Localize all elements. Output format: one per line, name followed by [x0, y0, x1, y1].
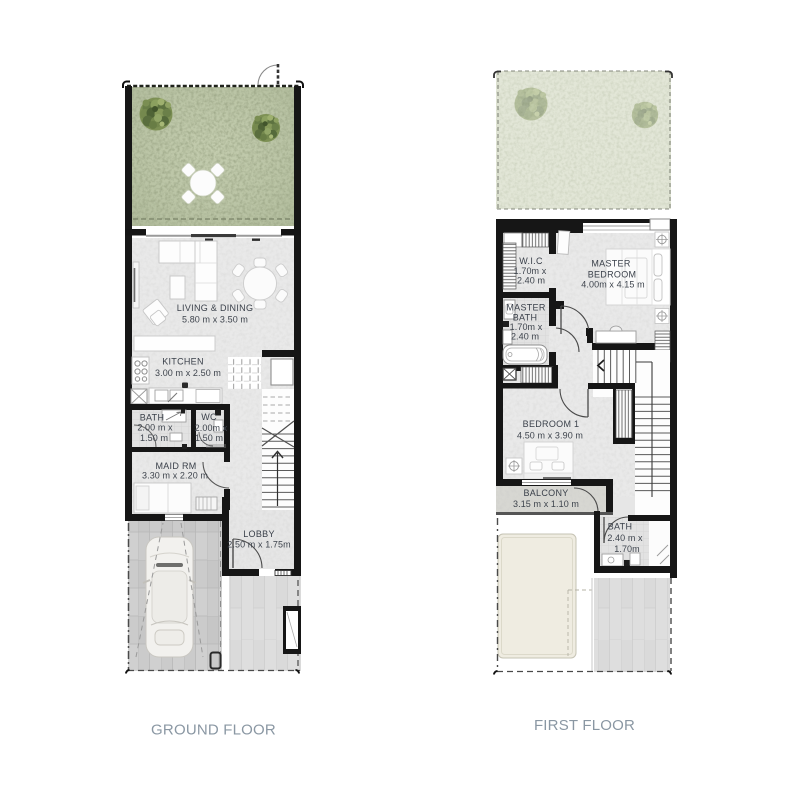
svg-text:1.70m: 1.70m	[614, 544, 640, 554]
svg-text:3.00 m x 2.50 m: 3.00 m x 2.50 m	[155, 368, 221, 378]
svg-text:3.15 m x 1.10 m: 3.15 m x 1.10 m	[513, 499, 579, 509]
svg-text:MASTER: MASTER	[591, 259, 631, 269]
svg-text:MAID RM: MAID RM	[155, 461, 196, 471]
svg-text:BEDROOM 1: BEDROOM 1	[523, 419, 580, 429]
svg-text:KITCHEN: KITCHEN	[162, 357, 204, 367]
svg-text:3.30 m x 2.20 m: 3.30 m x 2.20 m	[142, 471, 208, 481]
svg-text:W.I.C: W.I.C	[519, 256, 543, 266]
svg-text:1.70m x: 1.70m x	[514, 266, 547, 276]
svg-text:4.50 m x 3.90 m: 4.50 m x 3.90 m	[517, 431, 583, 441]
svg-text:BATH: BATH	[140, 413, 165, 423]
svg-text:WC: WC	[201, 412, 217, 422]
svg-text:LOBBY: LOBBY	[243, 529, 275, 539]
svg-text:BATH: BATH	[608, 522, 633, 532]
svg-text:BALCONY: BALCONY	[523, 488, 568, 498]
svg-text:1.50 m: 1.50 m	[140, 433, 168, 443]
svg-text:2.40 m x: 2.40 m x	[607, 533, 643, 543]
svg-text:2.00 m x: 2.00 m x	[137, 423, 173, 433]
svg-text:2.40 m: 2.40 m	[517, 276, 545, 286]
svg-text:BATH: BATH	[513, 313, 538, 323]
svg-text:FIRST FLOOR: FIRST FLOOR	[534, 717, 635, 734]
svg-text:BEDROOM: BEDROOM	[588, 270, 637, 280]
svg-text:2.50 m x 1.75m: 2.50 m x 1.75m	[227, 540, 290, 550]
svg-text:1.70m x: 1.70m x	[510, 322, 543, 332]
svg-text:5.80 m x 3.50 m: 5.80 m x 3.50 m	[182, 315, 248, 325]
svg-text:LIVING & DINING: LIVING & DINING	[177, 303, 254, 313]
svg-text:2.00m x: 2.00m x	[195, 423, 228, 433]
svg-text:2.40 m: 2.40 m	[511, 332, 539, 342]
svg-text:4.00m x 4.15 m: 4.00m x 4.15 m	[581, 280, 644, 290]
svg-text:GROUND FLOOR: GROUND FLOOR	[151, 722, 276, 739]
svg-text:MASTER: MASTER	[506, 303, 546, 313]
svg-text:1.50 m: 1.50 m	[195, 433, 223, 443]
